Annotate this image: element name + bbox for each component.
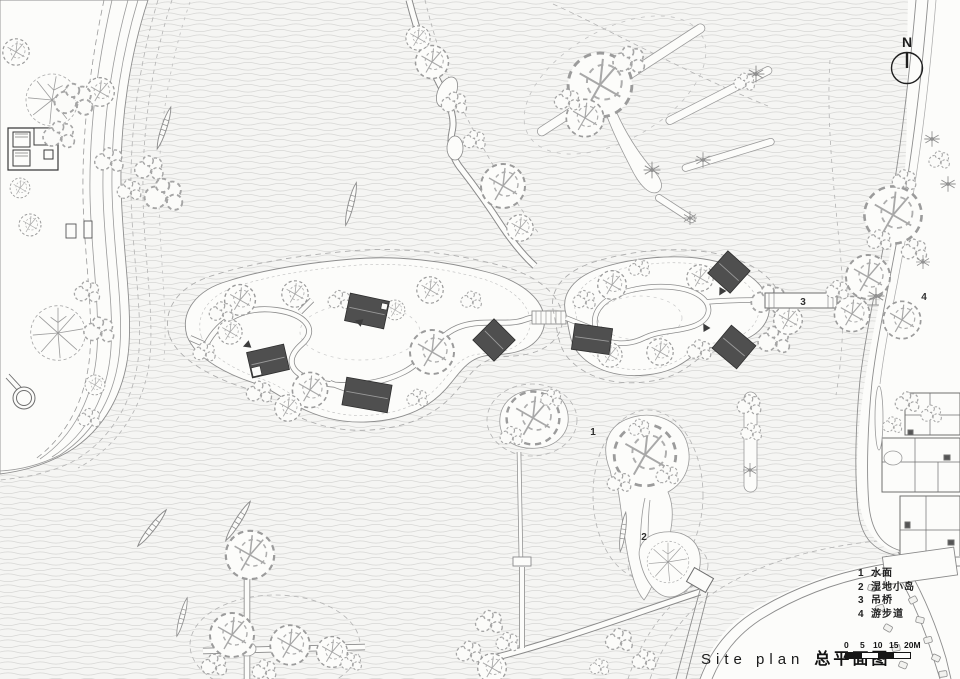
- scale-tick: 0: [844, 640, 849, 650]
- stone-icon: [915, 616, 924, 624]
- tree-icon: [598, 271, 627, 300]
- tree-icon: [3, 39, 29, 65]
- title-english: Site plan: [701, 651, 804, 668]
- scale-tick: 10: [873, 640, 882, 650]
- legend-num: 1: [858, 567, 871, 581]
- scale-tick-labels: 0 5 10 15 20M: [842, 640, 922, 650]
- tree-icon: [481, 164, 525, 208]
- tree-icon: [10, 178, 30, 198]
- scale-tick: 15: [889, 640, 898, 650]
- scale-tick: 5: [860, 640, 865, 650]
- legend-item-islet: 2 湿地小岛: [858, 581, 915, 595]
- tree-icon: [210, 613, 254, 657]
- cabin-roof: [571, 323, 612, 354]
- tree-icon: [85, 375, 105, 395]
- tree-icon: [774, 306, 803, 335]
- tree-icon: [410, 330, 454, 374]
- legend-item-water: 1 水面: [858, 567, 915, 581]
- legend: 1 水面 2 湿地小岛 3 吊桥 4 游步道: [858, 567, 915, 621]
- site-plan-drawing: 1 2 3 4 N Site plan总平面图 1 水面 2 湿地小岛 3 吊桥…: [0, 0, 960, 679]
- legend-num: 2: [858, 581, 871, 595]
- island-connector-bridge: [532, 311, 566, 324]
- tree-icon: [507, 215, 533, 241]
- scale-strip: [845, 652, 911, 659]
- plan-label-bridge: 3: [800, 297, 806, 308]
- tree-icon: [647, 339, 673, 365]
- tree-icon: [275, 395, 301, 421]
- scale-bar: 0 5 10 15 20M: [842, 640, 922, 662]
- legend-label: 湿地小岛: [871, 581, 915, 595]
- plan-label-islet: 2: [641, 532, 647, 543]
- tree-icon: [282, 281, 308, 307]
- legend-num: 3: [858, 594, 871, 608]
- site-plan-canvas: 1 2 3 4 N: [0, 0, 960, 679]
- tree-icon: [846, 255, 890, 299]
- legend-num: 4: [858, 608, 871, 622]
- legend-item-bridge: 3 吊桥: [858, 594, 915, 608]
- tree-icon: [226, 531, 274, 579]
- tree-icon: [834, 296, 869, 331]
- legend-label: 水面: [871, 567, 893, 581]
- tree-icon: [687, 265, 713, 291]
- tree-icon: [417, 277, 443, 303]
- north-label: N: [902, 34, 912, 50]
- legend-label: 游步道: [871, 608, 904, 622]
- stone-icon: [939, 670, 948, 677]
- tree-icon: [19, 214, 41, 236]
- scale-tick: 20M: [904, 640, 921, 650]
- legend-item-trail: 4 游步道: [858, 608, 915, 622]
- plan-label-water: 1: [590, 427, 596, 438]
- plan-label-trail: 4: [921, 292, 927, 303]
- tree-icon: [416, 46, 449, 79]
- legend-label: 吊桥: [871, 594, 893, 608]
- tree-icon: [406, 26, 430, 50]
- tree-icon: [883, 301, 920, 338]
- tree-icon: [478, 654, 507, 679]
- tree-icon: [270, 625, 310, 665]
- tree-icon: [218, 320, 242, 344]
